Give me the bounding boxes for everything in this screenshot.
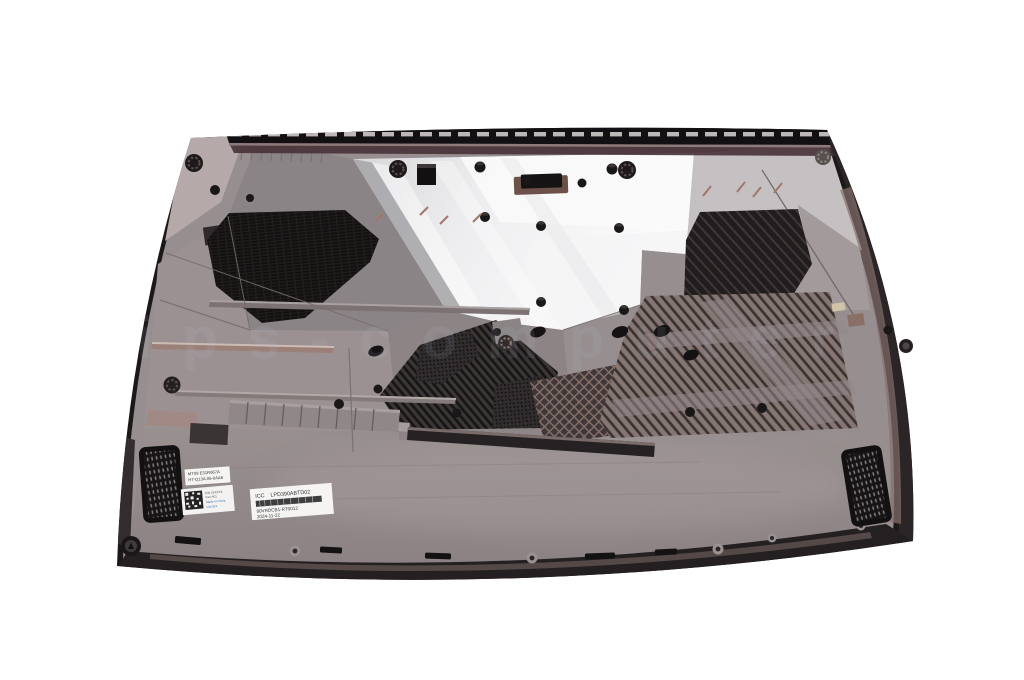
svg-text:ips-computer: ips-computer: [136, 306, 863, 371]
